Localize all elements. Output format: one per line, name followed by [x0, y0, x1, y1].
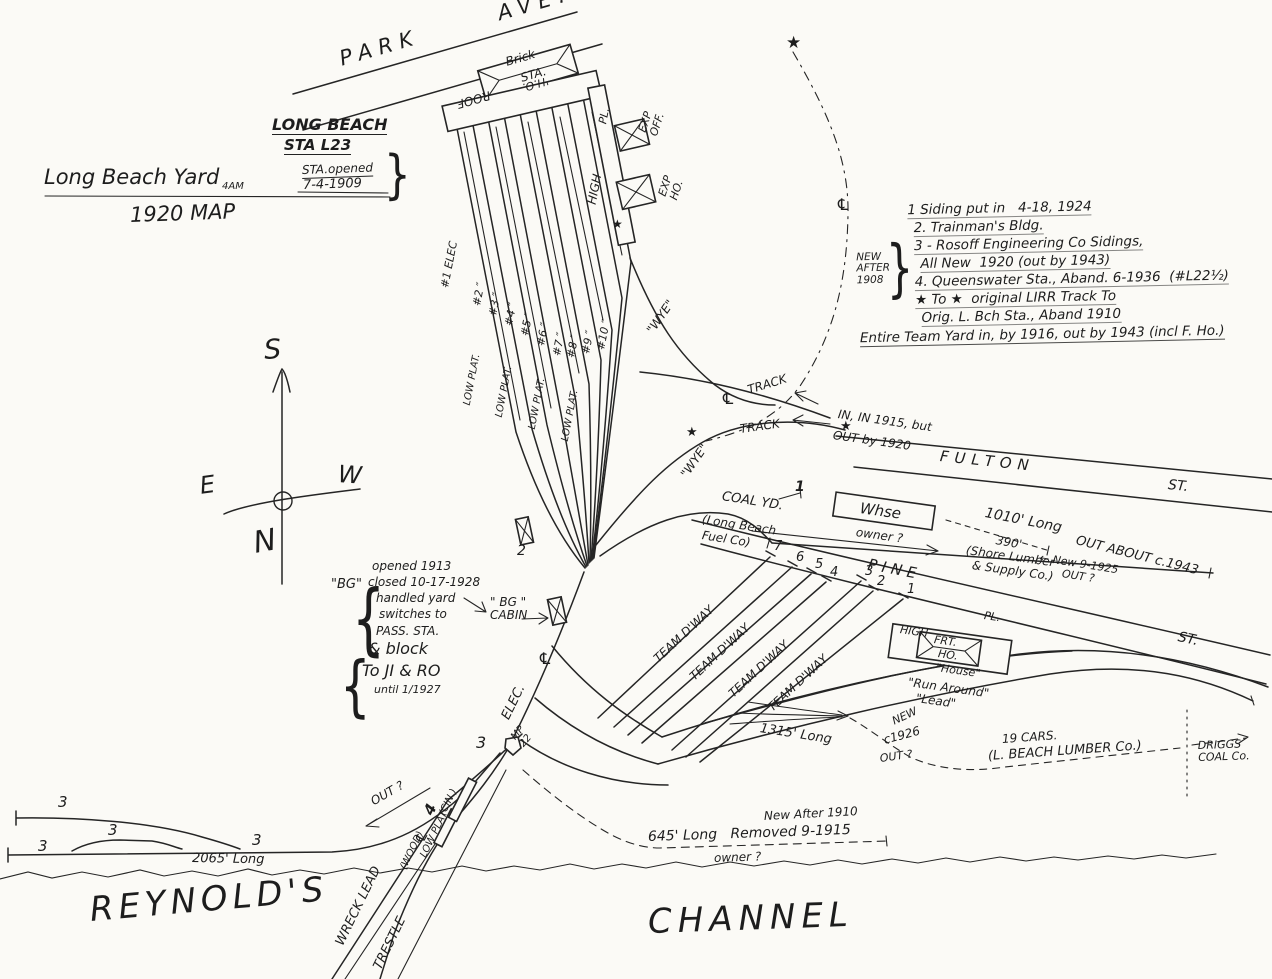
yard-name: Long Beach Yard — [44, 166, 219, 189]
compass-west: W — [337, 462, 362, 489]
team-track-number: 7 — [774, 540, 782, 554]
team-track-number: 1 — [907, 583, 915, 597]
trainman-bldg-number: 2 — [517, 544, 526, 559]
misc-marks — [45, 192, 548, 624]
sta-opened-date: 7-4-1909 — [303, 177, 362, 193]
centerline-symbol: ℄ — [838, 196, 848, 213]
star-marker: ★ — [612, 218, 623, 231]
dashed-tracks — [523, 710, 1248, 848]
rosoff-siding-number: 3 — [252, 832, 262, 848]
freight-pl-label: PL. — [983, 610, 1001, 624]
channel-name-east: CHANNEL — [647, 897, 854, 941]
star-marker: ★ — [840, 420, 852, 434]
siding-note-marker-1: 1 — [795, 480, 805, 495]
station-number: STA L23 — [284, 137, 351, 155]
map-year: 1920 MAP — [130, 200, 236, 226]
driggs-coal-label: DRIGGS COAL Co. — [1198, 738, 1250, 764]
centerline-symbol: ℄ — [723, 390, 733, 407]
owner-question: owner ? — [714, 850, 762, 865]
title-brace: } — [384, 146, 411, 203]
block-note-line: until 1/1927 — [374, 684, 441, 696]
block-note-line: & block — [368, 640, 428, 657]
note-line: 2. Trainman's Bldg. — [913, 218, 1043, 236]
bg-note-line: handled yard — [376, 592, 455, 605]
star-marker: ★ — [686, 426, 698, 440]
team-track-number: 2 — [877, 575, 885, 589]
station-title: LONG BEACH — [272, 116, 387, 135]
map-artwork — [0, 0, 1272, 979]
rosoff-siding-number: 3 — [58, 794, 68, 810]
siding-length-2065: 2065' Long — [192, 852, 265, 867]
bg-note-line: closed 10-17-1928 — [368, 576, 480, 589]
freight-house-ho: HO. — [937, 648, 958, 663]
team-track-number: 5 — [815, 558, 823, 572]
block-note-line: To JI & RO — [362, 662, 440, 679]
rosoff-siding-number: 3 — [108, 822, 118, 838]
star-marker: ★ — [786, 34, 801, 52]
bg-note-line: opened 1913 — [372, 560, 451, 573]
scanned-track-map: PARK AVE. LONG BEACH STA L23 Long Beach … — [0, 0, 1272, 979]
bg-cabin-label: " BG " CABIN — [490, 596, 527, 622]
centerline-symbol: ℄ — [540, 650, 550, 667]
team-track-number: 4 — [830, 566, 838, 580]
fulton-st-suffix: ST. — [1167, 478, 1189, 495]
bg-note-line: switches to — [379, 608, 447, 621]
rosoff-siding-number: 3 — [38, 838, 48, 854]
team-track-number: 6 — [796, 551, 804, 565]
bg-note-line: PASS. STA. — [376, 625, 439, 638]
notes-brace: } — [886, 234, 914, 303]
channel-water-line — [0, 854, 1216, 879]
compass-south: S — [263, 335, 282, 365]
rosoff-siding-number: 3 — [476, 734, 486, 751]
team-track-number: 3 — [865, 565, 873, 579]
surveyor-initials: 4AM — [222, 182, 244, 193]
